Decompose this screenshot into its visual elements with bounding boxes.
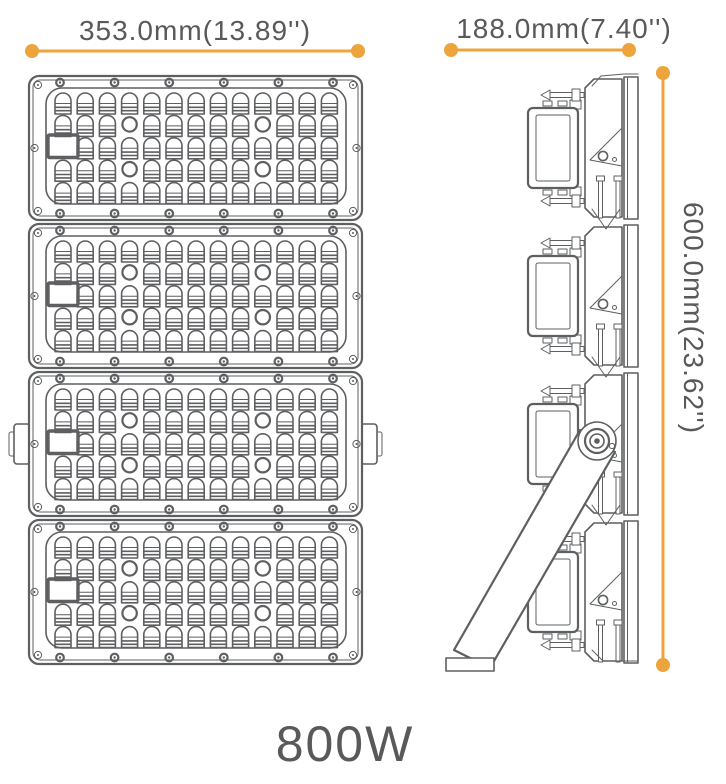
height-dim-dot-bottom bbox=[656, 658, 670, 672]
dimension-depth: 188.0mm(7.40'') bbox=[444, 13, 672, 57]
dimension-width: 353.0mm(13.89'') bbox=[25, 15, 365, 58]
pivot-hub-center bbox=[594, 438, 600, 444]
front-view bbox=[29, 76, 362, 664]
front-module-4 bbox=[29, 520, 362, 664]
wattage-label: 800W bbox=[276, 716, 415, 772]
front-module-3 bbox=[29, 372, 362, 516]
width-dim-label: 353.0mm(13.89'') bbox=[79, 15, 311, 46]
depth-dim-dot-right bbox=[622, 43, 636, 57]
depth-dim-label: 188.0mm(7.40'') bbox=[456, 13, 672, 44]
width-dim-dot-left bbox=[25, 44, 39, 58]
side-module-1 bbox=[528, 77, 638, 219]
height-dim-dot-top bbox=[656, 66, 670, 80]
depth-dim-dot-left bbox=[444, 43, 458, 57]
bracket-tab-right bbox=[361, 424, 377, 464]
height-dim-label: 600.0mm(23.62'') bbox=[678, 202, 709, 434]
front-module-1 bbox=[29, 76, 362, 220]
diagram-canvas: 353.0mm(13.89'') 188.0mm(7.40'') 600.0mm… bbox=[0, 0, 726, 784]
dimension-height: 600.0mm(23.62'') bbox=[656, 66, 709, 672]
width-dim-dot-right bbox=[351, 44, 365, 58]
side-module-2 bbox=[528, 225, 638, 367]
floodlight-dimension-diagram: 353.0mm(13.89'') 188.0mm(7.40'') 600.0mm… bbox=[0, 0, 726, 784]
front-module-2 bbox=[29, 224, 362, 368]
bracket-tab-left bbox=[14, 424, 30, 464]
kickstand-foot bbox=[446, 658, 494, 671]
